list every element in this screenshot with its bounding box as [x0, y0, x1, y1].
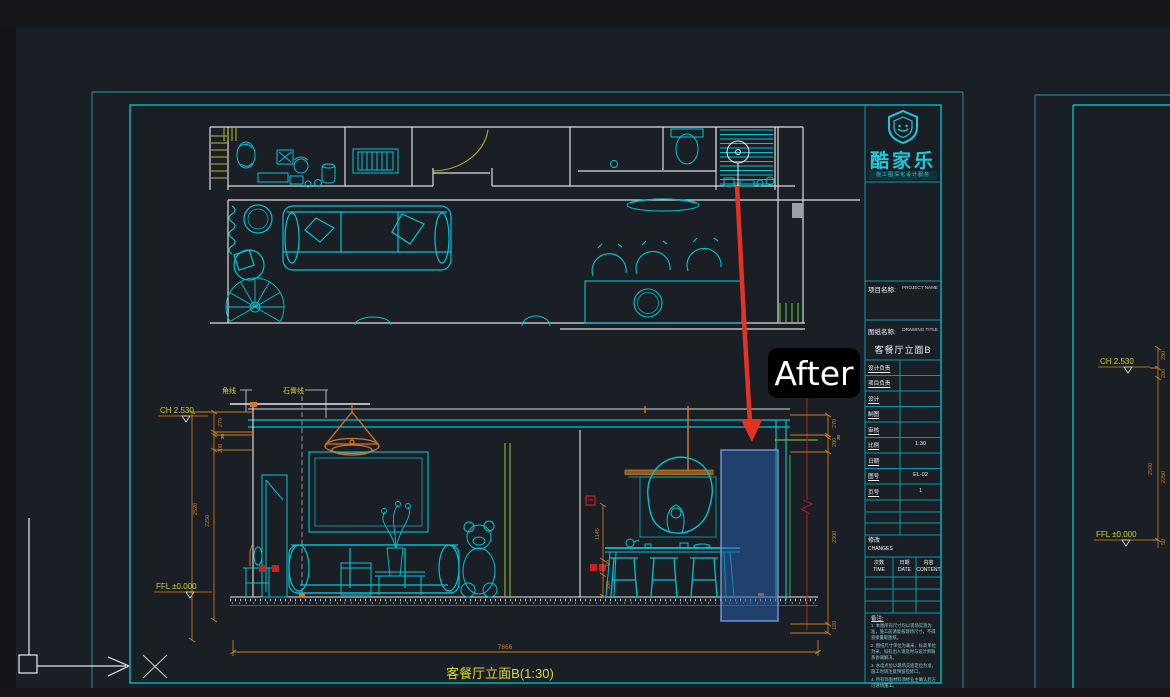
row-value-page-no: 1 — [900, 488, 941, 494]
drawing-name: 客餐厅立面B — [865, 343, 941, 356]
side-dim-3: 2500 — [1148, 463, 1154, 475]
notes-title: 备注: — [871, 614, 884, 622]
brand-tagline: 施工图深化设计服务 — [869, 171, 937, 180]
dim-socket-1: 1145 — [595, 528, 601, 540]
corner-molding-label: 角线 — [222, 386, 236, 395]
sheet-name-value: DRAWING TITLE — [898, 327, 938, 332]
changes-col-content: 内容CONTENT — [916, 560, 941, 573]
top-bar — [0, 0, 1170, 28]
row-label-page-no: 页号 — [868, 488, 879, 496]
row-label-project-lead: 项目负责 — [868, 379, 890, 387]
side-dim-5: 50 — [1161, 539, 1167, 545]
sheet-name-label: 图纸名称: — [868, 326, 896, 336]
project-name-value: PROJECT NAME — [898, 285, 938, 290]
title-block-grid — [865, 105, 941, 683]
brand-logo-icon — [886, 109, 920, 145]
sheet-borders — [92, 92, 1170, 697]
dim-right-2300: 2300 — [832, 531, 838, 543]
row-label-draft: 制图 — [868, 410, 879, 418]
side-dim-1: 230 — [1161, 351, 1167, 360]
side-dim-4: 2250 — [1161, 471, 1167, 483]
ucs-icon — [19, 518, 129, 676]
highlight-region — [721, 450, 778, 621]
cad-viewport: 1145 90 350 角线 石膏线 CH 2.530 FFL ±0.000 — [0, 0, 1170, 697]
dim-left-total: 2520 — [193, 503, 199, 515]
row-label-review: 审核 — [868, 426, 879, 434]
drawing-layer: 1145 90 350 角线 石膏线 CH 2.530 FFL ±0.000 — [0, 0, 1170, 697]
note-line: 2. 图纸尺寸单位为毫米，标高单位为米。如有出入请及时与设计师联系协调解决。 — [871, 643, 938, 661]
annotation-arrow — [737, 186, 762, 442]
side-ffl-label: FFL ±0.000 — [1096, 530, 1137, 539]
row-label-drawing-no: 图号 — [868, 472, 879, 480]
side-dim-2: 200 — [1161, 369, 1167, 378]
dim-right-200: 200 — [832, 438, 838, 447]
row-label-date: 日期 — [868, 457, 879, 465]
changes-label-en: CHANGES — [868, 546, 893, 553]
elevation-title: 客餐厅立面B(1:30) — [446, 666, 554, 681]
dim-left-inner: 2250 — [205, 515, 211, 527]
dim-left-270: 270 — [218, 418, 224, 427]
dim-right-120: 120 — [832, 621, 838, 630]
left-edge-strip — [0, 28, 16, 688]
after-badge-label: After — [774, 354, 853, 393]
after-badge: After — [768, 348, 860, 398]
floor-plan — [210, 127, 860, 329]
note-line: 3. 水电点位以现场交底定位为准，施工时请注意预留检修口。 — [871, 663, 938, 675]
changes-col-date: 日期DATE — [893, 560, 916, 573]
brand-name: 酷家乐 — [865, 146, 941, 173]
dim-socket-3: 350 — [606, 581, 612, 590]
cad-canvas[interactable]: 1145 90 350 角线 石膏线 CH 2.530 FFL ±0.000 — [0, 0, 1170, 697]
row-value-scale: 1:30 — [900, 441, 941, 447]
row-label-design: 设计 — [868, 395, 879, 403]
dim-socket-2: 90 — [606, 560, 612, 566]
bottom-bar — [0, 688, 1170, 697]
dim-bottom-width: 7866 — [498, 644, 513, 651]
row-label-scale: 比例 — [868, 441, 879, 449]
row-value-drawing-no: EL-02 — [900, 472, 941, 478]
notes-list: 1. 本图所有尺寸均以现场实测为准，施工前请复核现场尺寸，不得直接量取图纸。 2… — [871, 623, 938, 697]
dim-left-200: 200 — [218, 444, 224, 453]
changes-label: 修改 — [868, 538, 880, 545]
dim-right-270: 270 — [832, 419, 838, 428]
changes-col-times: 次数TIME — [865, 560, 893, 573]
crosshair-cursor[interactable] — [143, 655, 167, 678]
floor-level-label: FFL ±0.000 — [156, 582, 197, 591]
dim-left-30: 30 — [220, 433, 225, 439]
note-line: 1. 本图所有尺寸均以现场实测为准，施工前请复核现场尺寸，不得直接量取图纸。 — [871, 623, 938, 641]
side-sheet-drawing: CH 2.530 FFL ±0.000 230 200 2500 2250 50 — [1094, 346, 1167, 548]
project-name-label: 项目名称: — [868, 284, 896, 294]
row-label-design-lead: 设计负责 — [868, 364, 890, 372]
wall-column — [792, 203, 803, 218]
plaster-molding-label: 石膏线 — [283, 386, 304, 395]
side-ch-label: CH 2.530 — [1100, 357, 1134, 366]
